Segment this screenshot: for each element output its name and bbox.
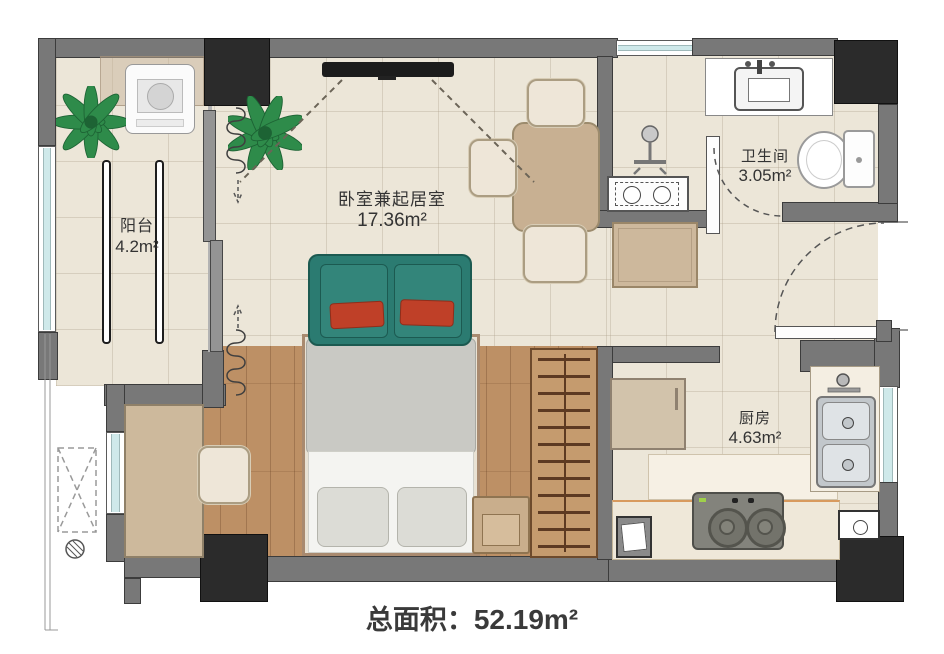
kitchen-name: 厨房 (702, 410, 808, 428)
plant-icon (56, 86, 126, 158)
nook-wall-lower (106, 514, 125, 562)
wall-bottom-main (266, 556, 612, 582)
desk-chair (198, 446, 250, 504)
shoe-cabinet-panel (618, 228, 692, 282)
wall-bottom-kitchen (608, 558, 842, 582)
refrigerator-handle (675, 388, 678, 410)
entry-door-hinge (876, 320, 892, 342)
sink-drain (842, 459, 854, 471)
washer-control-panel (136, 119, 184, 127)
drain-hatch-circle (66, 540, 84, 558)
nightstand-drawer (482, 514, 520, 546)
tv-bracket (378, 76, 396, 80)
ac-platform-symbol (58, 448, 96, 532)
kitchen-sink-basin-bottom (822, 444, 870, 482)
wall-bottom-left (124, 556, 206, 578)
balcony-slide-panel-a (203, 110, 216, 242)
toilet-flush-button (856, 157, 862, 163)
sofa (308, 254, 472, 346)
dining-chair-left (469, 139, 517, 197)
wall-right-lower (878, 482, 898, 540)
balcony-left-window (38, 146, 56, 332)
toilet-tank (843, 130, 875, 188)
balcony-area: 4.2m² (87, 237, 187, 257)
wall-top (50, 38, 618, 58)
bathroom-sink-counter (705, 58, 833, 116)
balcony-divider-stub (202, 350, 224, 408)
dining-chair-bottom (523, 225, 587, 283)
bathroom-bottom-wall (782, 202, 898, 222)
kitchen-area: 4.63m² (702, 428, 808, 448)
plant-icon (228, 96, 302, 170)
gas-stove (692, 492, 784, 550)
water-heater (838, 510, 880, 540)
bathroom-label: 卫生间 3.05m² (712, 148, 818, 186)
dining-chair-top (527, 79, 585, 127)
washing-machine (125, 64, 195, 134)
bathroom-top-window (616, 40, 694, 56)
refrigerator (610, 378, 686, 450)
sofa-pillow-right (400, 299, 455, 327)
wall-right-upper (878, 104, 898, 204)
pillar-bottom-left (200, 534, 268, 602)
kitchen-right-window (878, 386, 898, 484)
nightstand (472, 496, 530, 554)
bathroom-area: 3.05m² (712, 166, 818, 186)
washer-drum (137, 79, 183, 113)
stove-burner-right (746, 508, 786, 548)
pillar-top-right (834, 40, 898, 104)
floor-hatch-lid (621, 522, 648, 552)
balcony-slide-panel-b (210, 240, 223, 352)
kitchen-sink (816, 396, 876, 488)
bedroom-living-label: 卧室兼起居室 17.36m² (292, 190, 492, 232)
floor-hatch (616, 516, 652, 558)
entry-opening (878, 222, 898, 330)
bathroom-sink-inner (748, 78, 790, 102)
pillar-bottom-right (836, 536, 904, 602)
stove-knob-left (732, 498, 738, 503)
bed-pillow-left (317, 487, 389, 547)
bed-pillow-right (397, 487, 467, 547)
balcony-label: 阳台 4.2m² (87, 218, 187, 257)
total-area-value: 52.19m² (474, 604, 578, 635)
kitchen-sink-basin-top (822, 402, 870, 440)
bedroom-living-area: 17.36m² (292, 210, 492, 232)
total-area-label: 总面积： (366, 605, 474, 635)
floor-plan-canvas: 阳台 4.2m² 卧室兼起居室 17.36m² 卫生间 3.05m² 厨房 4.… (0, 0, 944, 654)
washer-drum-circle (147, 83, 174, 110)
desk-nook-window (106, 432, 125, 514)
wardrobe-rail (564, 354, 566, 552)
kitchen-label: 厨房 4.63m² (702, 410, 808, 448)
water-heater-dial (853, 520, 868, 535)
nook-wall-upper (106, 384, 125, 432)
bed-blanket (306, 338, 476, 454)
desk (124, 404, 204, 558)
shoe-cabinet (612, 222, 698, 288)
wall-left-mid (38, 332, 58, 380)
wall-top-right (692, 38, 838, 56)
shower-cabinet (607, 176, 689, 212)
bedroom-living-name: 卧室兼起居室 (292, 190, 492, 210)
wall-left-upper (38, 38, 56, 146)
stove-indicator (699, 498, 706, 502)
shower-drain-left (623, 186, 641, 204)
sink-drain (842, 417, 854, 429)
total-area-caption: 总面积：52.19m² (0, 598, 944, 646)
balcony-name: 阳台 (87, 218, 187, 237)
bathroom-name: 卫生间 (712, 148, 818, 166)
kitchen-top-wall (612, 346, 720, 363)
dining-table (512, 122, 600, 232)
entry-door-leaf (775, 326, 885, 339)
sofa-pillow-left (329, 301, 384, 330)
tv (322, 62, 454, 77)
shower-drain-right (653, 186, 671, 204)
stove-knob-right (748, 498, 754, 503)
wardrobe (530, 348, 598, 558)
entry-threshold-ticks (898, 222, 908, 330)
double-bed (302, 334, 480, 556)
stove-burner-left (708, 508, 748, 548)
bathroom-sink-basin (734, 67, 804, 111)
